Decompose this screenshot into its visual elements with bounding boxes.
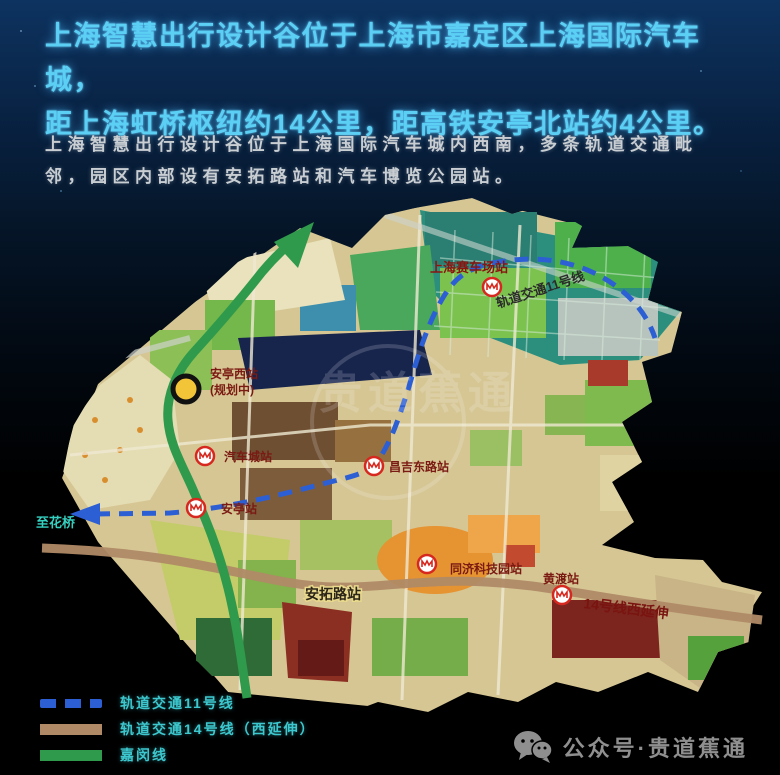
wechat-account-label: 公众号·贵道蕉通 xyxy=(563,731,748,763)
label-qichecheng-station: 汽车城站 xyxy=(224,449,272,464)
label-anting-station: 安亭站 xyxy=(221,501,257,516)
metro-icon-saichechang xyxy=(483,278,501,296)
line14-swatch xyxy=(40,724,102,735)
legend-row-jiamin: 嘉闵线 xyxy=(40,742,460,768)
label-huangdu-station: 黄渡站 xyxy=(543,571,579,586)
label-to-huaqiao: 至花桥 xyxy=(36,515,76,530)
planning-map: 贵道蕉通 xyxy=(0,0,780,775)
label-saichechang-station: 上海赛车场站 xyxy=(430,260,508,275)
metro-icon-huangdu xyxy=(553,586,571,604)
legend-label-line11: 轨道交通11号线 xyxy=(120,693,235,713)
legend-row-line14: 轨道交通14号线（西延伸） xyxy=(40,716,460,742)
metro-icon-qichecheng xyxy=(196,447,214,465)
legend-label-jiamin: 嘉闵线 xyxy=(120,745,168,765)
label-antingxi-status: (规划中) xyxy=(210,382,254,397)
metro-icon-changjidonglu xyxy=(365,457,383,475)
label-antuolu-station: 安拓路站 xyxy=(305,586,361,602)
metro-icon-anting xyxy=(187,499,205,517)
infographic-page: 上海智慧出行设计谷位于上海市嘉定区上海国际汽车城， 距上海虹桥枢纽约14公里，距… xyxy=(0,0,780,775)
label-antingxi-station: 安亭西站 xyxy=(210,366,258,381)
legend: 轨道交通11号线 轨道交通14号线（西延伸） 嘉闵线 xyxy=(40,690,460,768)
wechat-attribution: 公众号·贵道蕉通 xyxy=(513,730,748,764)
design-valley-marker xyxy=(173,376,199,402)
svg-text:贵道蕉通: 贵道蕉通 xyxy=(318,369,518,418)
label-tongji-station: 同济科技园站 xyxy=(450,561,522,576)
jiamin-swatch xyxy=(40,750,102,761)
label-changjidonglu-station: 昌吉东路站 xyxy=(389,459,449,474)
legend-label-line14: 轨道交通14号线（西延伸） xyxy=(120,719,316,739)
wechat-icon xyxy=(513,730,553,764)
legend-row-line11: 轨道交通11号线 xyxy=(40,690,460,716)
metro-icon-tongji xyxy=(418,555,436,573)
line11-swatch xyxy=(40,699,102,708)
landuse-patches xyxy=(40,198,762,712)
